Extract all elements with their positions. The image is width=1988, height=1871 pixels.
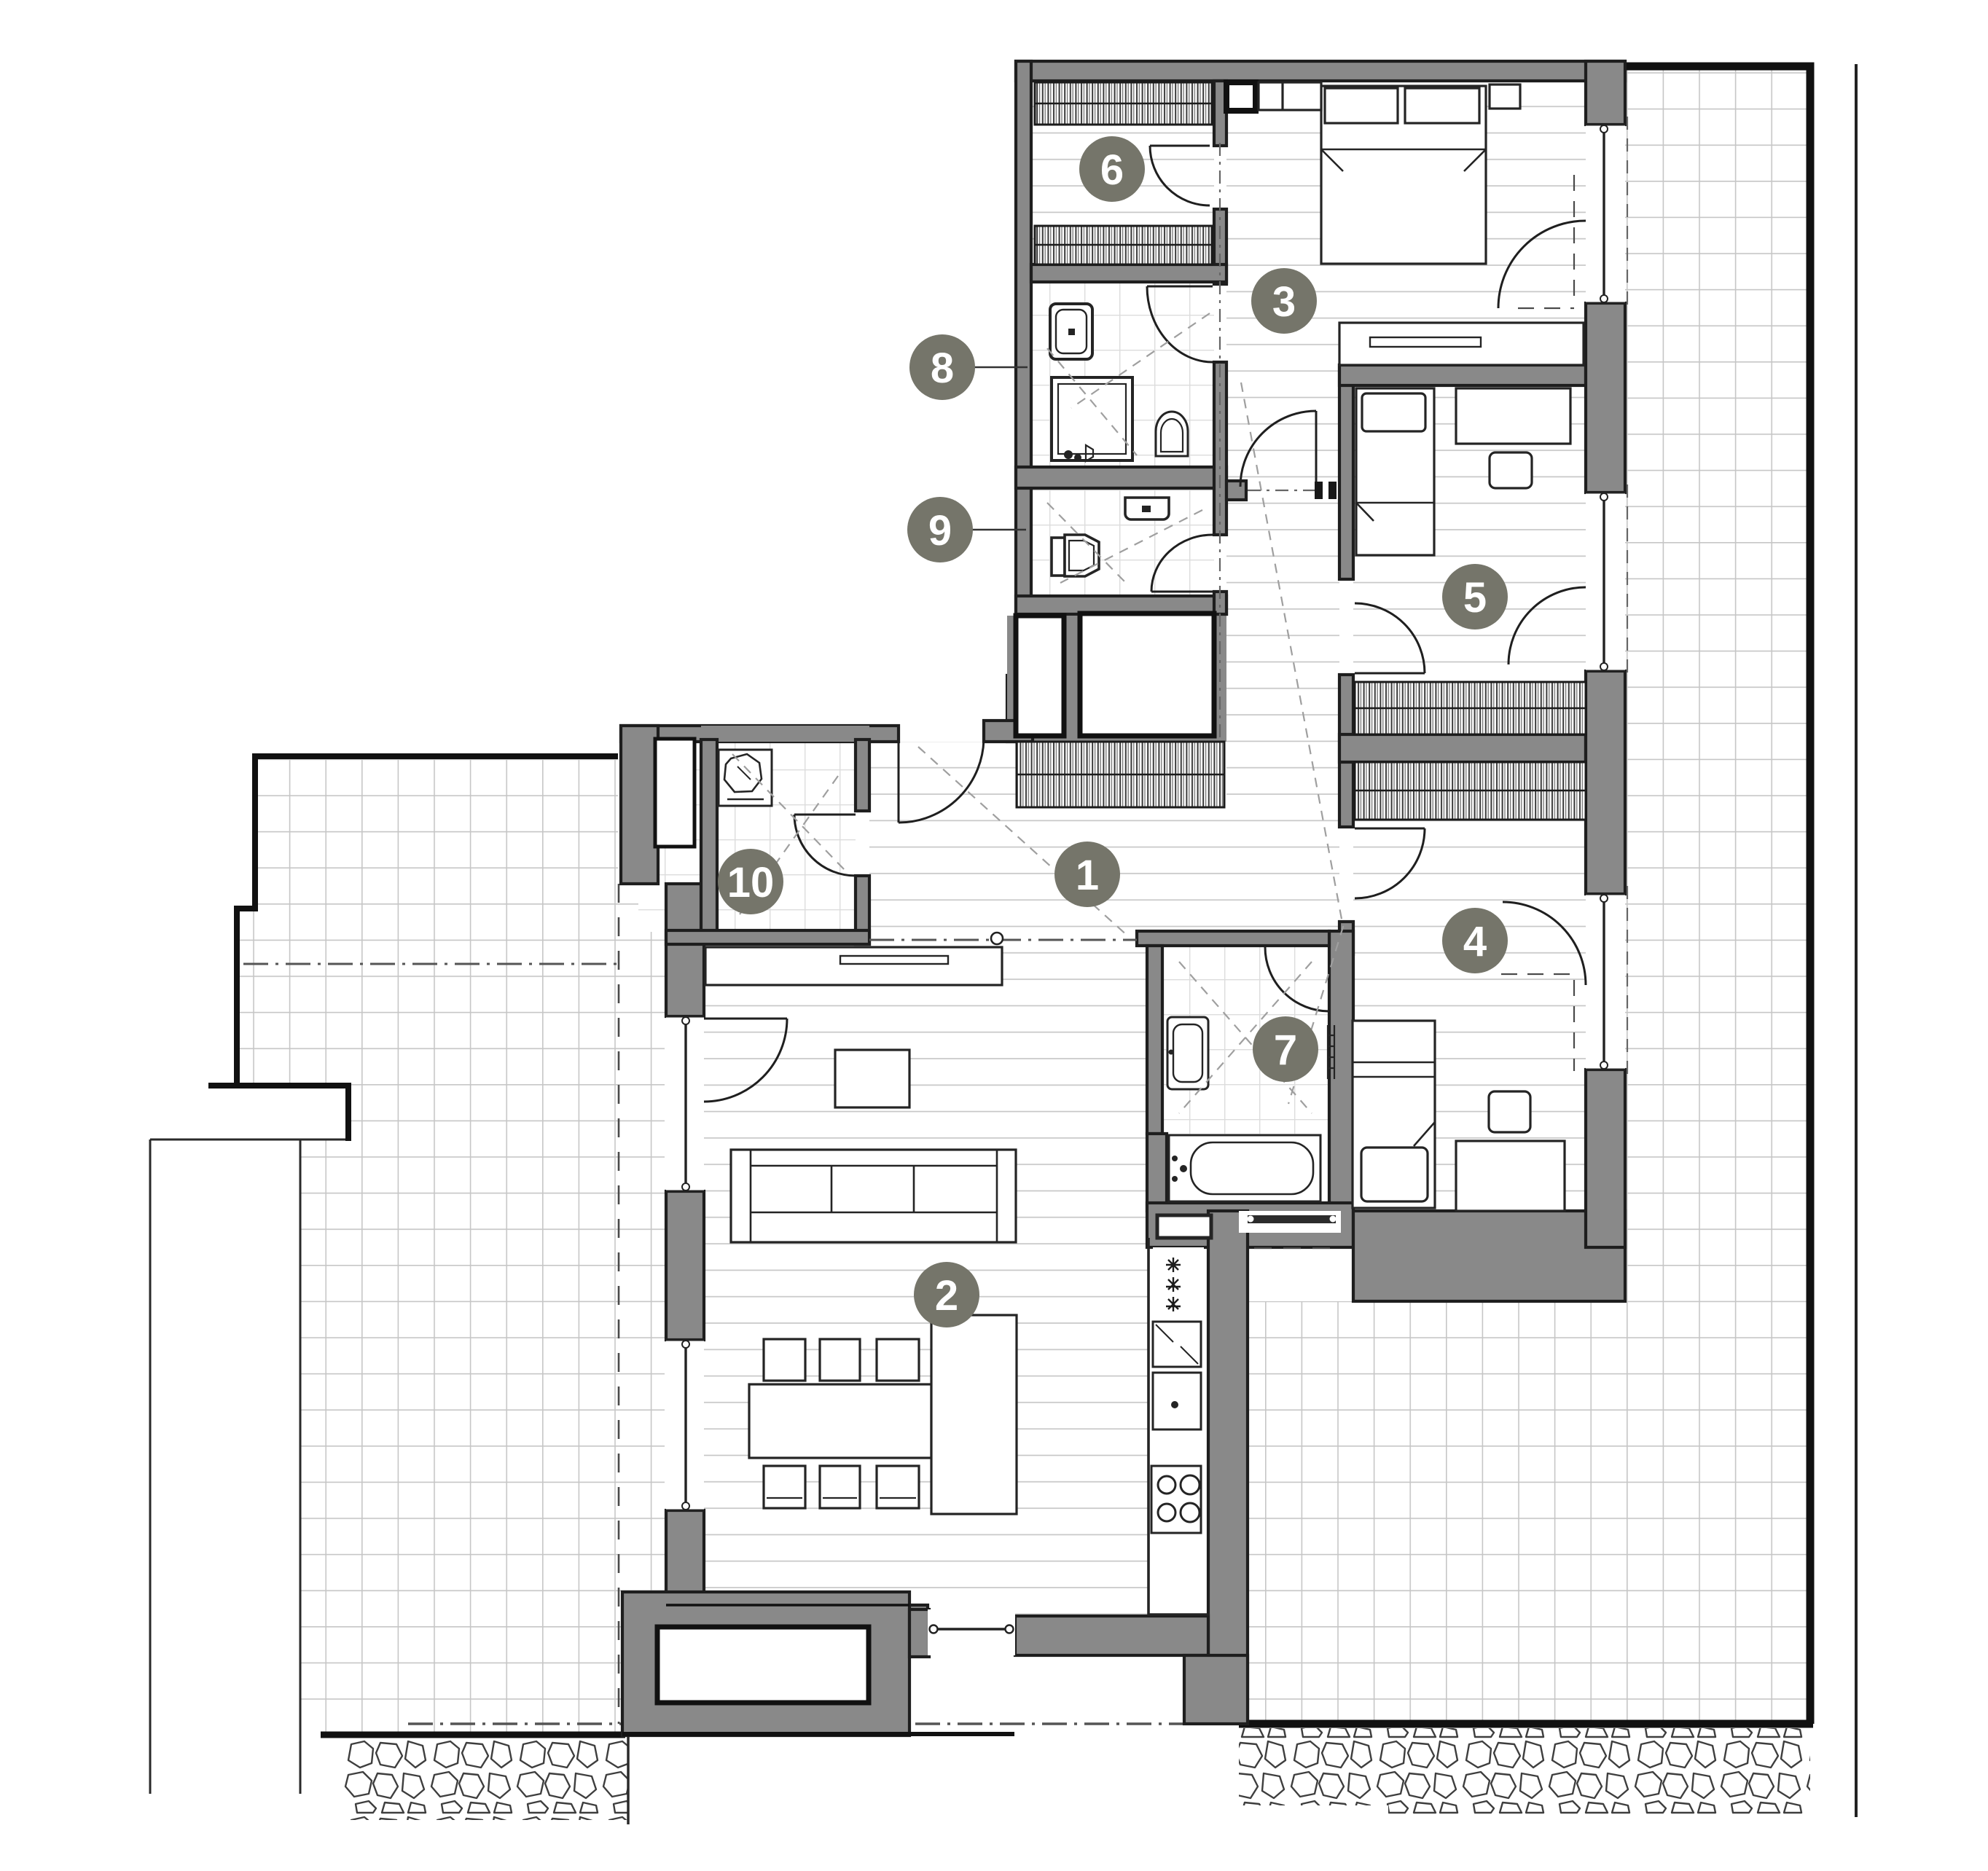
svg-text:1: 1 (1076, 852, 1099, 899)
svg-text:4: 4 (1463, 918, 1487, 965)
svg-text:9: 9 (928, 507, 952, 554)
svg-text:3: 3 (1272, 278, 1296, 326)
svg-text:8: 8 (931, 345, 954, 392)
svg-text:10: 10 (727, 859, 775, 906)
svg-text:2: 2 (935, 1272, 958, 1319)
svg-text:6: 6 (1100, 146, 1124, 194)
svg-text:5: 5 (1463, 574, 1487, 621)
svg-text:7: 7 (1274, 1027, 1297, 1074)
